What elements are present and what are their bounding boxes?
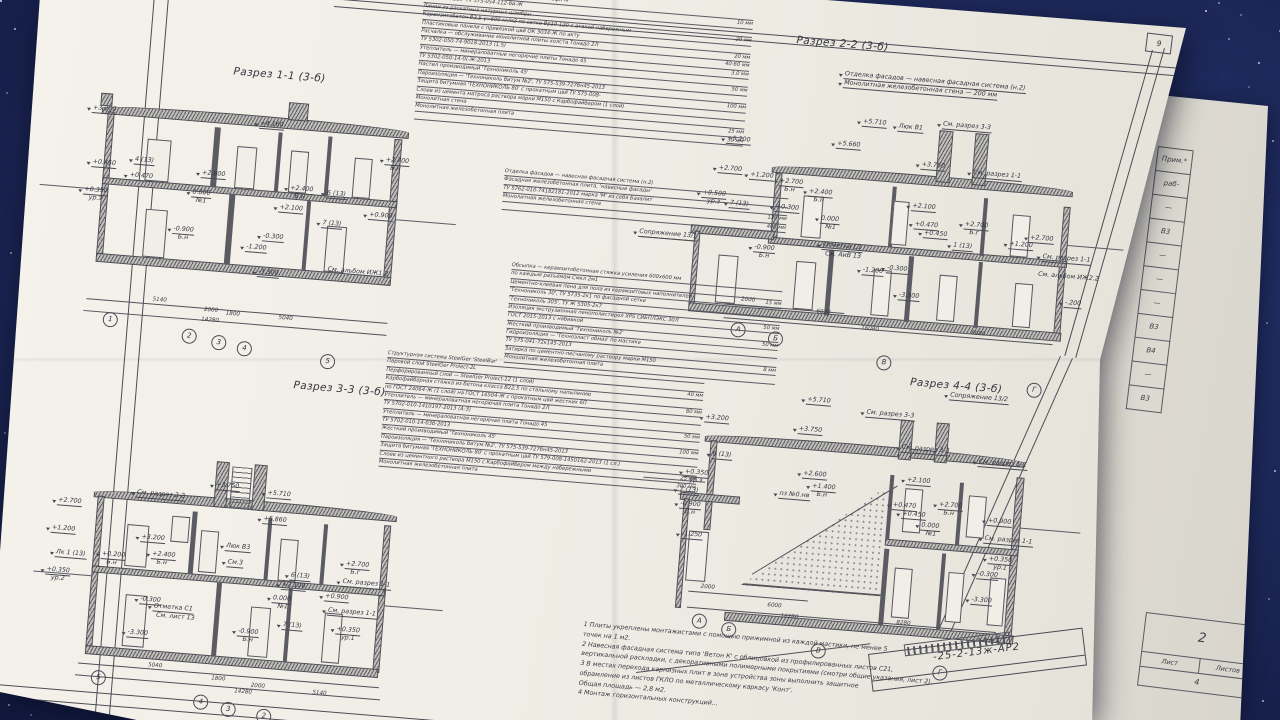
grid-bubble: 3 [211, 335, 227, 351]
elevation-label: +5.710 [266, 489, 292, 500]
section-title: Разрез 1-1 (3-б) [233, 65, 326, 85]
elevation-label: См.З [226, 558, 244, 569]
elevation-label: +3.750 [215, 481, 241, 492]
elevation-label: -3.300 [898, 291, 921, 302]
elevation-label: Люк В3 [225, 542, 252, 553]
dimension-value: 6000 [767, 602, 782, 609]
elevation-label: +0.900 [368, 211, 394, 222]
door-opening [945, 572, 965, 623]
door-opening [321, 613, 343, 664]
elevation-label: -.200 [1063, 299, 1082, 310]
partition [324, 136, 332, 196]
dimension-value: 5040 [278, 315, 293, 322]
wall-hatched [372, 525, 391, 673]
grid-bubble: 1 [102, 312, 118, 328]
elevation-label: Сопряжение 13/1 [638, 228, 698, 242]
door-opening [792, 261, 816, 310]
elevation-label: Б.г [969, 229, 979, 237]
elevation-label: -3.300 [257, 268, 280, 279]
door-opening [1012, 283, 1034, 328]
elevation-label: Б.н [813, 196, 824, 204]
elevation-label: 7 (1З) [281, 621, 303, 632]
door-opening [352, 158, 373, 199]
photo-scene: Прим.*раб-—В3———В3В4—В3 2 Лист Листов 4 [0, 0, 1280, 720]
elevation-label: Лк 1 (1З) [55, 548, 87, 560]
elevation-label: -1.200 [245, 243, 268, 254]
elevation-label: -0.300 [976, 570, 999, 581]
partition [824, 250, 834, 316]
elevation-label: +0.900 [324, 592, 350, 603]
elevation-label: Б.н [943, 509, 954, 517]
elevation-label: +5.710 [806, 396, 832, 407]
elevation-label: -3.300 [970, 596, 993, 607]
elevation-label: См. альбом ИЖ2.2 [1038, 271, 1099, 283]
dimension-value: 6020 [816, 309, 831, 316]
partition [955, 483, 964, 545]
elevation-label: №1 [196, 197, 207, 205]
grid-bubble: А [691, 613, 707, 629]
elevation-label: Б.н [106, 558, 117, 566]
elevation-label: Б.н [390, 165, 401, 173]
elevation-label: См. разрез 1-1 [977, 458, 1027, 471]
partition [224, 195, 236, 265]
door-opening [234, 146, 257, 189]
elevation-label: +2.100 [281, 581, 307, 592]
elevation-label: Б.н [758, 252, 769, 260]
elevation-label: б (1З) [711, 450, 733, 461]
door-opening [124, 524, 149, 568]
elevation-label: ур.з [88, 194, 102, 202]
dimension-value: 8080 [971, 330, 986, 337]
sheet-main: 9 Разрез 1-1 (3-б) [0, 0, 1280, 720]
elevation-label: +1.200 [749, 171, 775, 182]
ground-line [396, 219, 456, 225]
door-opening [966, 495, 987, 538]
door-opening [891, 568, 913, 619]
elevation-label: №1 [925, 530, 936, 538]
window-opening [170, 516, 190, 543]
elevation-label: +2.800 [201, 169, 227, 180]
elevation-label: Б.н [242, 636, 253, 644]
dimension-value: 5040 [148, 662, 163, 669]
elevation-label: Б.н [684, 508, 695, 516]
elevation-label: +0.900 [987, 517, 1013, 528]
elevation-label: +5.860 [262, 515, 288, 526]
partition [974, 262, 983, 328]
dimension-value: 2000 [204, 307, 219, 314]
sheet-number-box: 9 [1145, 32, 1173, 54]
grid-bubble: 2 [256, 708, 272, 720]
dim-line [688, 591, 808, 602]
elevation-label: Б.н [177, 233, 188, 241]
elevation-label: +2.100 [278, 204, 304, 215]
elevation-label: ур.1 [993, 564, 1007, 572]
sheet-main-wrap: 9 Разрез 1-1 (3-б) [0, 0, 1280, 720]
elevation-label: +3.750 [920, 161, 946, 172]
elevation-label: пз №0.нв [778, 490, 811, 502]
elevation-label: +2.700 [717, 164, 743, 175]
elevation-label: Б.г [350, 568, 360, 576]
dimension-value: 16080 [861, 325, 879, 332]
elevation-label: Б.н [156, 559, 167, 567]
elevation-label: 1 (1З) [952, 242, 974, 253]
dimension-value: 14280 [201, 317, 219, 324]
chimney [935, 130, 953, 183]
dimension-value: 1800 [225, 311, 240, 318]
ground-line [1020, 528, 1080, 534]
grid-bubble: 4 [236, 341, 252, 357]
section-title: Разрез 3-3 (3-б) [293, 379, 386, 399]
elevation-label: -3.300 [126, 628, 149, 639]
partition [211, 583, 222, 656]
elevation-label: +2.100 [906, 476, 932, 487]
elevation-label: +2.700 [57, 496, 83, 507]
elevation-label: +5.660 [836, 140, 862, 151]
dimension-value: 8280 [896, 620, 911, 627]
door-opening [1010, 214, 1031, 257]
elevation-label: +0.450 [923, 229, 949, 240]
elevation-label: Б.н [816, 491, 827, 499]
elevation-label: +3.200 [92, 104, 118, 115]
elevation-label: №1 [825, 223, 836, 231]
partition [319, 524, 328, 584]
elevation-label: -1.250 [680, 530, 703, 541]
spec-table-roof: № 575-01-1135бн-Ж на клеевой мастике 'Те… [414, 0, 754, 147]
elevation-label: Люк В1 [897, 123, 924, 134]
door-opening [198, 530, 219, 573]
elevation-label: +5.710 [862, 118, 888, 129]
dimension-value: 2000 [700, 584, 715, 591]
elevation-label: +4.160 [259, 120, 285, 131]
elevation-label: +3.750 [797, 425, 823, 436]
elevation-label: +2.100 [911, 202, 937, 213]
elevation-label: +3.200 [140, 533, 166, 544]
grid-bubble: 3 [220, 701, 236, 717]
dimension-value: 5140 [152, 297, 167, 304]
ground-line [385, 605, 443, 611]
elevation-label: 6 (1З) [325, 189, 347, 200]
dimension-value: 2000 [250, 683, 265, 690]
elevation-label: +0.470 [128, 171, 154, 182]
elevation-label: ур.2 [51, 574, 65, 582]
elevation-label: №1 [277, 603, 288, 611]
dimension-value: 14280 [234, 688, 252, 695]
grid-bubble: 5 [90, 670, 106, 686]
elevation-label: ур.1 [341, 634, 355, 642]
door-opening [142, 209, 168, 259]
elevation-label: +1.200 [51, 524, 77, 535]
ground-line [1068, 245, 1124, 251]
door-opening [936, 275, 958, 322]
elevation-label: +2.700 [1029, 234, 1055, 245]
grid-bubble: 2 [181, 328, 197, 344]
grid-bubble: 4 [193, 694, 209, 710]
elevation-label: 4 (1З) [134, 156, 156, 167]
elevation-label: -0.300 [262, 232, 285, 243]
grid-bubble: 5 [319, 354, 335, 370]
elevation-label: 7 (1З) [321, 219, 343, 230]
roof-slab [102, 103, 410, 139]
elevation-label: См. разрез 3-3 [865, 409, 915, 422]
dimension-value: 5140 [312, 690, 327, 697]
dimension-value: 1800 [211, 675, 226, 682]
section-1-1: Разрез 1-1 (3-б) [70, 48, 434, 385]
elevation-label: См. разрез 1-1 [983, 535, 1033, 548]
elevation-label: +3.200 [704, 413, 730, 424]
chimney [288, 102, 309, 122]
elevation-label: +0.450 [901, 510, 927, 521]
section-title: Разрез 2-2 (3-б) [796, 34, 889, 54]
elevation-label: +2.600 [802, 470, 828, 481]
elevation-label: Б.н [294, 193, 305, 201]
partition [263, 518, 272, 580]
partition [274, 132, 282, 192]
dim-line [75, 674, 380, 700]
elevation-label: +0.450 [91, 158, 117, 169]
elevation-label: -0.300 [886, 264, 909, 275]
